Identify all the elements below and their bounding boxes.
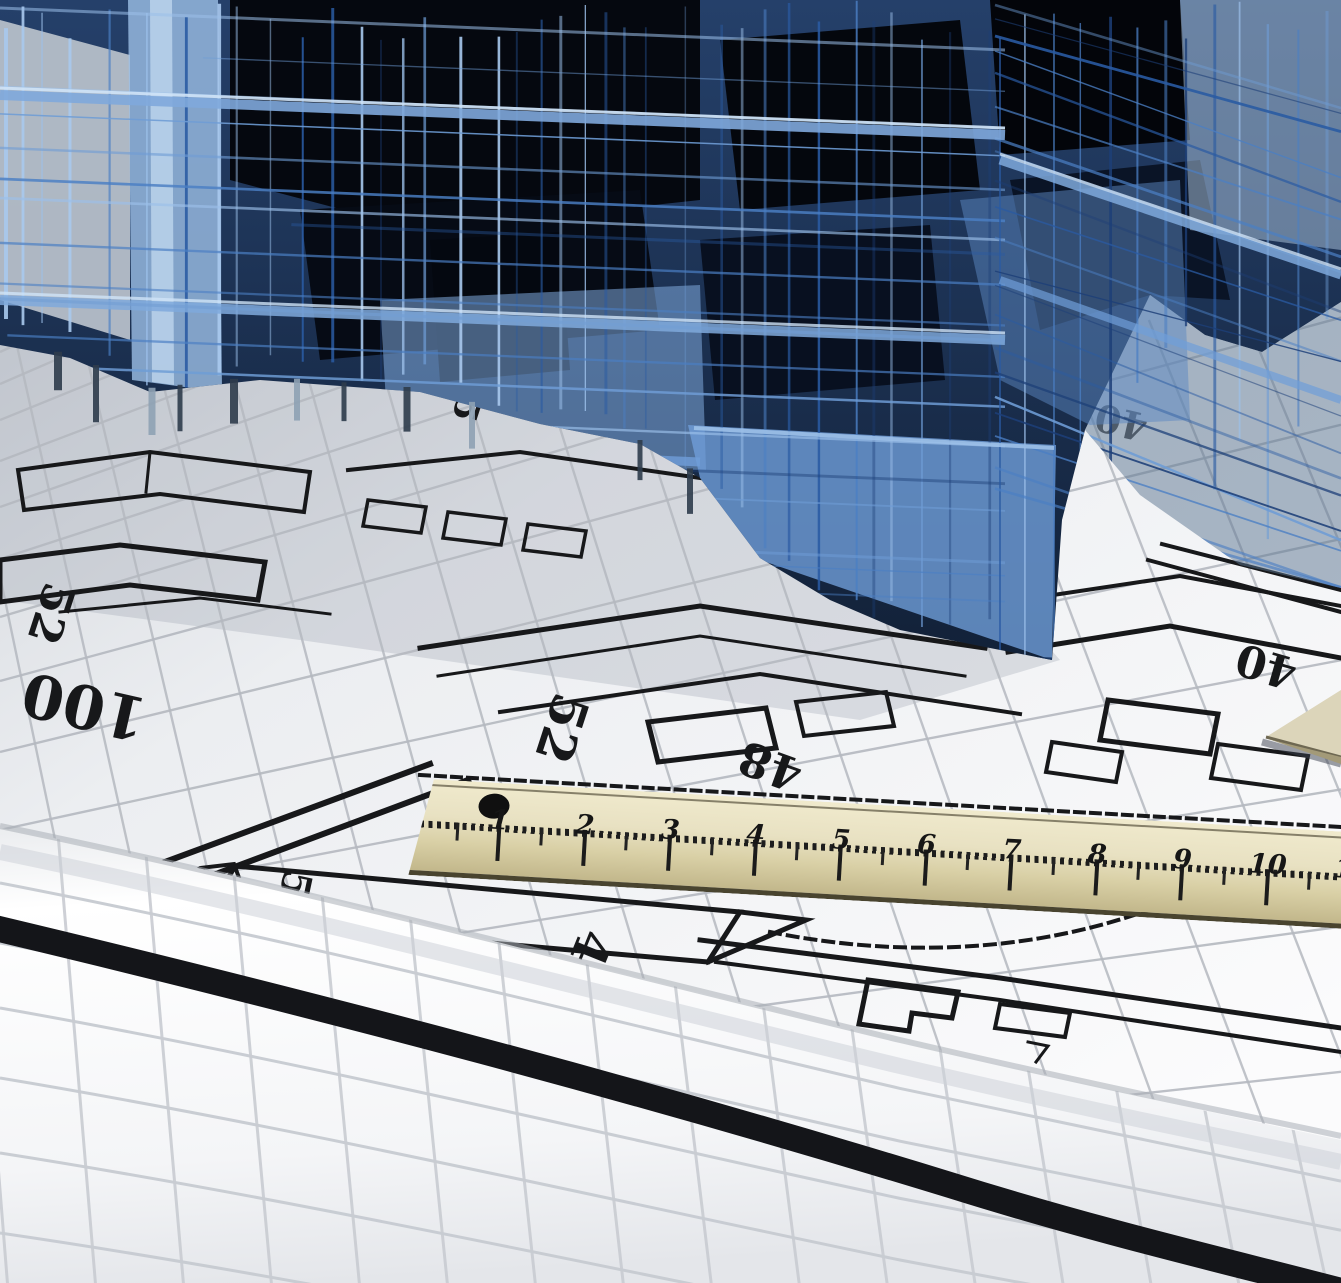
ruler-number: 7: [987, 833, 1037, 867]
scene: 100 52 52 48 40 5 48 40 25 25: [0, 0, 1341, 1283]
ruler-half-tick: [1137, 862, 1141, 880]
ruler-number: 5: [816, 823, 866, 857]
ruler-number: 8: [1072, 838, 1122, 872]
ruler-number: 1: [475, 804, 525, 838]
building-model: [0, 0, 1341, 700]
ruler-number: 10: [1243, 848, 1293, 882]
building-wireframe: [0, 0, 1341, 700]
ruler-half-tick: [1307, 872, 1311, 890]
ruler-half-tick: [1222, 867, 1226, 885]
ruler-number: 6: [902, 828, 952, 862]
ruler-number: 2: [560, 809, 610, 843]
ruler-half-tick: [710, 837, 714, 855]
ruler-half-tick: [880, 847, 884, 865]
ruler-half-tick: [1051, 857, 1055, 875]
ruler-half-tick: [455, 823, 459, 841]
ruler-number: 11: [1328, 853, 1341, 887]
ruler-half-tick: [795, 842, 799, 860]
ruler-number: 9: [1158, 843, 1208, 877]
ruler-number: 3: [646, 813, 696, 847]
ruler-half-tick: [966, 852, 970, 870]
ruler-half-tick: [539, 827, 543, 845]
ruler-half-tick: [624, 832, 628, 850]
ruler-number: 4: [731, 818, 781, 852]
